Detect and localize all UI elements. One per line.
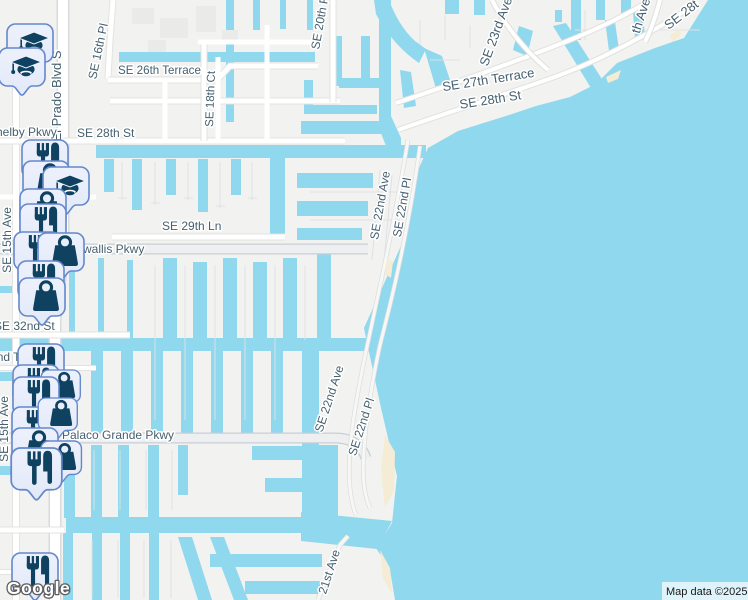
- svg-text:SE 15th Ave: SE 15th Ave: [0, 207, 14, 273]
- svg-text:Shelby Pkwy: Shelby Pkwy: [0, 125, 57, 139]
- svg-text:Google: Google: [7, 578, 70, 598]
- svg-text:SE 26th Terrace: SE 26th Terrace: [118, 64, 201, 77]
- svg-text:Palaco Grande Pkwy: Palaco Grande Pkwy: [62, 428, 174, 442]
- svg-text:SE 18th Ct: SE 18th Ct: [203, 70, 218, 127]
- svg-text:SE 28th St: SE 28th St: [77, 126, 135, 140]
- svg-text:SE 29th Ln: SE 29th Ln: [162, 219, 221, 233]
- svg-text:SE 15th Ave: SE 15th Ave: [0, 396, 11, 462]
- svg-text:Map data ©2025: Map data ©2025: [666, 586, 748, 598]
